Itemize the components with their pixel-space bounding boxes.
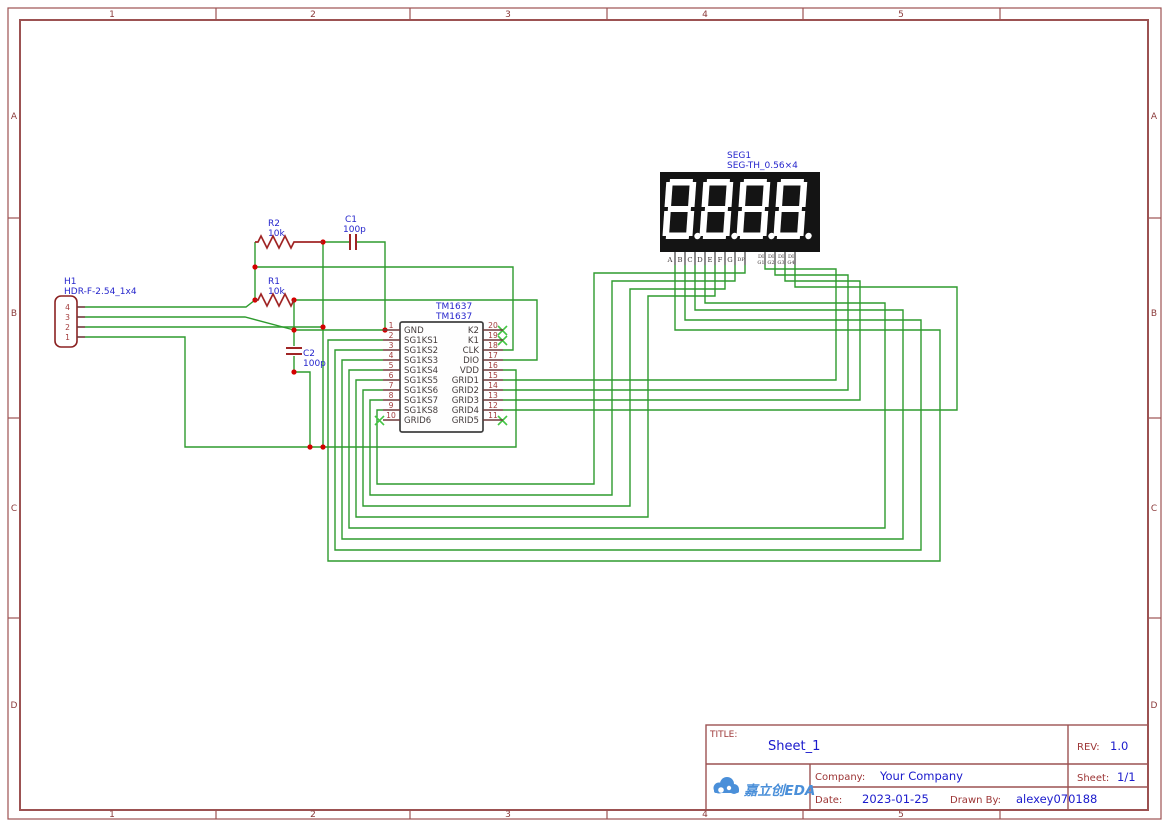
capacitor-body xyxy=(350,234,356,250)
drawn-by-label: Drawn By: xyxy=(950,795,1001,806)
frame-col-label: 4 xyxy=(702,10,708,20)
frame-row-label: C xyxy=(11,504,17,514)
component-tm1637[interactable]: TM1637 TM1637 GND SG1KS1 SG1KS2 SG1KS3 S… xyxy=(383,302,503,432)
ic-pin-number: 4 xyxy=(389,351,394,360)
h1-ref: H1 xyxy=(64,277,77,287)
r2-ref: R2 xyxy=(268,219,280,229)
frame-col-label: 1 xyxy=(109,10,115,20)
frame-row-label: A xyxy=(1151,112,1158,122)
logo-text: 嘉立创EDA xyxy=(743,783,815,799)
c1-ref: C1 xyxy=(345,215,357,225)
ic-pin-number: 17 xyxy=(488,351,498,360)
ic-pin-name: VDD xyxy=(460,366,479,376)
ic-pin-name: SG1KS8 xyxy=(404,406,438,416)
frame-row-label: B xyxy=(1151,309,1157,319)
ic-pin-name: SG1KS3 xyxy=(404,356,438,366)
wire xyxy=(357,242,385,330)
wire xyxy=(503,265,836,380)
ic-pin-name: CLK xyxy=(463,346,480,356)
ic-pin-number: 14 xyxy=(488,381,498,390)
ic-pin-name: SG1KS7 xyxy=(404,396,438,406)
ic-pin-number: 10 xyxy=(386,411,396,420)
ic-pin-name: GRID5 xyxy=(452,416,479,426)
r1-ref: R1 xyxy=(268,277,280,287)
ic-pin-number: 5 xyxy=(389,361,394,370)
company-label: Company: xyxy=(815,772,865,783)
frame-row-label: D xyxy=(11,701,18,711)
ic-pin-number: 2 xyxy=(389,331,394,340)
c1-value: 100p xyxy=(343,225,366,235)
ic-pin-number: 3 xyxy=(389,341,394,350)
ic-pin-number: 16 xyxy=(488,361,498,370)
ic-pin-name: GRID2 xyxy=(452,386,479,396)
ic-pin-number: 1 xyxy=(389,321,394,330)
junction-dots xyxy=(252,239,387,449)
display-pin-label: D xyxy=(697,256,703,264)
component-r2[interactable]: R2 10k xyxy=(255,219,323,248)
c2-value: 100p xyxy=(303,359,326,369)
ic-pin-name: SG1KS5 xyxy=(404,376,438,386)
jlc-eda-logo: 嘉立创EDA xyxy=(714,777,816,799)
ic-pin-name: K1 xyxy=(468,336,479,346)
title-label: TITLE: xyxy=(709,730,737,740)
wire xyxy=(85,300,255,307)
schematic-canvas[interactable]: 1 2 3 4 5 1 2 3 4 5 A B C D A B C D xyxy=(0,0,1169,827)
display-pin-label: G2 xyxy=(767,260,774,266)
ic-pin-name: K2 xyxy=(468,326,479,336)
ic-ref: TM1637 xyxy=(435,302,472,312)
wire xyxy=(294,372,310,447)
ic-pin-name: SG1KS2 xyxy=(404,346,438,356)
ic-pin-number: 9 xyxy=(389,401,394,410)
ic-pin-name: DIO xyxy=(463,356,479,366)
c2-ref: C2 xyxy=(303,349,315,359)
resistor-body xyxy=(255,236,323,248)
ic-pin-number: 20 xyxy=(488,321,498,330)
frame-col-label: 5 xyxy=(898,810,904,820)
h1-pin-number: 1 xyxy=(65,333,70,342)
date-label: Date: xyxy=(815,795,842,806)
resistor-body xyxy=(255,294,294,306)
display-pin-label: F xyxy=(718,256,723,264)
rev-label: REV: xyxy=(1077,742,1100,753)
frame-labels: 1 2 3 4 5 1 2 3 4 5 A B C D A B C D xyxy=(11,10,1158,820)
schematic-sheet: 1 2 3 4 5 1 2 3 4 5 A B C D A B C D xyxy=(0,0,1169,827)
display-pin-label: G1 xyxy=(757,260,764,266)
sheet-frame xyxy=(8,8,1161,819)
ic-pin-number: 6 xyxy=(389,371,394,380)
ic-value: TM1637 xyxy=(435,312,472,322)
frame-col-label: 1 xyxy=(109,810,115,820)
display-pin-label: DP xyxy=(737,257,745,263)
ic-pin-name: GND xyxy=(404,326,424,336)
h1-value: HDR-F-2.54_1x4 xyxy=(64,287,137,297)
component-r1[interactable]: R1 10k xyxy=(255,277,294,306)
ic-pin-number: 18 xyxy=(488,341,498,350)
wire xyxy=(503,265,957,410)
title-block: TITLE: Sheet_1 REV: 1.0 Company: Your Co… xyxy=(706,725,1148,810)
cloud-icon xyxy=(714,777,740,794)
frame-col-label: 4 xyxy=(702,810,708,820)
frame-col-label: 5 xyxy=(898,10,904,20)
ic-pin-name: GRID1 xyxy=(452,376,479,386)
h1-pin-number: 4 xyxy=(65,303,70,312)
display-pin-label: G4 xyxy=(787,260,794,266)
component-seg1[interactable]: SEG1 SEG-TH_0.56×4 xyxy=(660,151,820,266)
company-value: Your Company xyxy=(879,769,963,783)
sheet-value: 1/1 xyxy=(1117,770,1136,784)
ic-pin-name: SG1KS1 xyxy=(404,336,438,346)
ic-pin-name: GRID6 xyxy=(404,416,431,426)
frame-row-label: A xyxy=(11,112,18,122)
h1-pin-number: 2 xyxy=(65,323,70,332)
seg1-ref: SEG1 xyxy=(727,151,751,161)
rev-value: 1.0 xyxy=(1110,739,1128,753)
date-value: 2023-01-25 xyxy=(862,792,929,806)
sheet-label: Sheet: xyxy=(1077,773,1109,784)
capacitor-body xyxy=(286,348,302,354)
component-c1[interactable]: C1 100p xyxy=(343,215,366,250)
display-pin-label: C xyxy=(687,256,692,264)
frame-row-label: B xyxy=(11,309,17,319)
ic-pin-name: SG1KS4 xyxy=(404,366,438,376)
display-pin-label: B xyxy=(678,256,683,264)
ic-pin-number: 12 xyxy=(488,401,498,410)
ic-pin-name: SG1KS6 xyxy=(404,386,438,396)
ic-pin-number: 13 xyxy=(488,391,498,400)
display-pin-label: A xyxy=(667,256,673,264)
display-pin-label: G xyxy=(727,256,732,264)
display-pin-label: G3 xyxy=(777,260,784,266)
ic-pin-number: 19 xyxy=(488,331,498,340)
frame-row-label: C xyxy=(1151,504,1157,514)
wire xyxy=(85,317,294,330)
ic-pin-name: GRID3 xyxy=(452,396,479,406)
r1-value: 10k xyxy=(268,287,285,297)
drawn-by-value: alexey070188 xyxy=(1016,792,1097,806)
h1-pin-number: 3 xyxy=(65,313,70,322)
frame-row-label: D xyxy=(1151,701,1158,711)
seg1-value: SEG-TH_0.56×4 xyxy=(727,161,798,171)
frame-col-label: 2 xyxy=(310,10,316,20)
frame-col-label: 3 xyxy=(505,10,511,20)
ic-pin-number: 8 xyxy=(389,391,394,400)
sheet-title: Sheet_1 xyxy=(768,739,820,754)
frame-col-label: 3 xyxy=(505,810,511,820)
ic-pin-number: 15 xyxy=(488,371,498,380)
ic-pin-number: 7 xyxy=(389,381,394,390)
ic-pin-name: GRID4 xyxy=(452,406,479,416)
frame-col-label: 2 xyxy=(310,810,316,820)
component-c2[interactable]: C2 100p xyxy=(286,348,326,369)
r2-value: 10k xyxy=(268,229,285,239)
wires[interactable] xyxy=(85,242,957,561)
display-pin-label: E xyxy=(708,256,713,264)
ic-pin-number: 11 xyxy=(488,411,498,420)
